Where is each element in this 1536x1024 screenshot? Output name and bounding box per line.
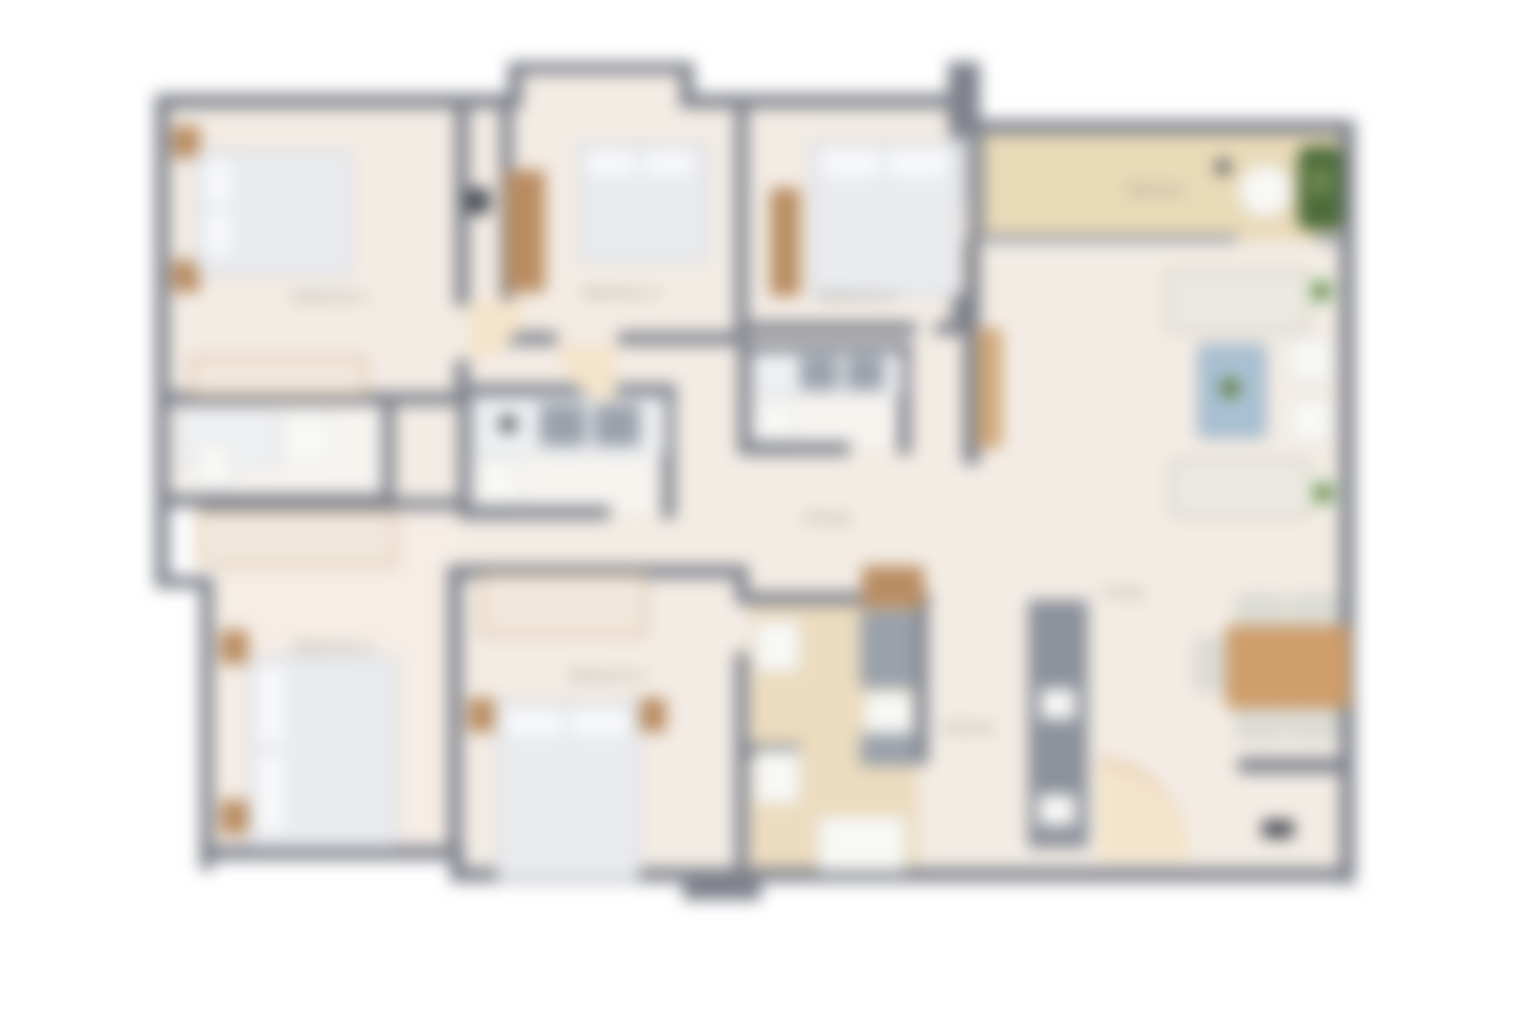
floor-plan-blur-layer: Bedroom 1 Bedroom 2 Bedroom 3 Bedroom 5 …: [0, 0, 1536, 1024]
floor-bedroom2-bump: [514, 72, 686, 112]
bedroom3-wardrobe-left: [770, 188, 800, 296]
wall-balcony-left: [970, 120, 983, 242]
kitchen-counter-lower: [860, 734, 916, 766]
bedroom4-pillow: [569, 707, 631, 739]
bedroom4-nightstand-left: [468, 698, 494, 732]
utility-dryer: [1038, 794, 1076, 826]
bedroom2-pillow: [584, 148, 638, 178]
floor-living-zone: [970, 240, 1344, 870]
living-sofa-bottom: [1170, 458, 1310, 518]
dining-chair: [1236, 704, 1284, 740]
central-bathroom-toilet: [478, 458, 518, 506]
wall-bedroom5-top: [200, 498, 464, 510]
balcony-small-object: [1216, 160, 1230, 174]
wall-cbath-bottom: [458, 506, 610, 519]
bedroom5-pillow: [254, 664, 288, 746]
wall-kitchen-right: [915, 592, 928, 764]
bedroom5-nightstand-bottom: [220, 800, 248, 834]
central-bathroom-sink: [594, 404, 640, 446]
bathroom3-sink: [846, 356, 884, 390]
entry-door-mark: [1262, 820, 1294, 838]
living-plant-leaf: [1314, 484, 1332, 502]
wall-bedroom5-bottom: [200, 846, 464, 860]
room-label-bedroom5: Bedroom 5: [295, 639, 372, 656]
room-label-bedroom2: Bedroom 2: [584, 285, 661, 302]
dining-chair: [1290, 594, 1338, 630]
room-label-living: Living: [1101, 584, 1143, 601]
wall-bath3-bottom: [738, 442, 850, 455]
kitchen-stove: [864, 692, 914, 734]
wall-bath1-right: [382, 404, 395, 504]
shower-tray: [818, 816, 906, 872]
dining-table: [1226, 626, 1350, 708]
wall-b4-left: [448, 565, 462, 857]
balcony-round-table: [1238, 164, 1292, 218]
wall-bottom-stub: [683, 880, 761, 900]
utility-washer: [1040, 688, 1076, 720]
coffee-table-centerpiece: [1220, 378, 1240, 398]
bedroom4-wardrobe: [480, 574, 646, 636]
room-label-bedroom3: Bedroom 3: [820, 288, 897, 305]
wall-b4-right-lower: [735, 652, 748, 882]
living-end-table: [1290, 398, 1332, 442]
room-label-dining: Dining: [805, 510, 850, 527]
bedroom2-pillow: [642, 148, 696, 178]
wall-below-b2-left: [513, 332, 557, 345]
bedroom3-pillow: [818, 146, 882, 180]
wall-left-upper: [155, 94, 169, 588]
room-label-bedroom1: Bedroom 1: [294, 289, 371, 306]
wall-cbath-left: [458, 384, 471, 519]
wall-top-mid: [680, 94, 974, 108]
bedroom2-wardrobe: [505, 170, 545, 292]
bathroom3-toilet: [758, 398, 794, 442]
bathroom1-washbasin: [282, 416, 334, 464]
dining-chair: [1236, 594, 1284, 630]
central-bathroom-faucet: [500, 416, 516, 432]
bathroom3-sink: [800, 356, 838, 390]
wall-left-lower: [200, 576, 213, 870]
living-plant-leaf: [1312, 282, 1330, 300]
wall-below-balcony-right: [1316, 234, 1342, 243]
bedroom4-nightstand-right: [640, 698, 666, 732]
wall-foyer: [1238, 758, 1355, 773]
bedroom5-nightstand-top: [220, 630, 248, 664]
bedroom3-pillow: [886, 146, 950, 180]
bathroom4-fixture: [754, 750, 800, 804]
room-label-bedroom4: Bedroom 4: [570, 668, 647, 685]
kitchen-sink: [754, 620, 800, 672]
wall-cbath-top: [458, 384, 676, 396]
balcony-plant-leaf: [1308, 166, 1332, 196]
dining-chair: [1290, 704, 1338, 740]
hall-door-panel: [976, 328, 1002, 448]
living-sofa-top: [1166, 270, 1308, 332]
living-end-table: [1290, 338, 1332, 382]
bedroom1-dresser: [190, 356, 366, 396]
bedroom5-wardrobe: [196, 510, 396, 566]
wall-b2-b3-divider: [735, 94, 748, 344]
central-bathroom-sink: [540, 404, 586, 446]
bedroom2-door-object: [466, 188, 490, 214]
bedroom1-pillow: [202, 210, 234, 258]
wall-balcony-top: [965, 120, 1355, 134]
dining-chair: [1194, 638, 1228, 692]
bedroom5-pillow: [254, 752, 288, 834]
dining-console: [862, 566, 924, 608]
bedroom4-pillow: [503, 707, 565, 739]
wall-below-b2-right: [618, 332, 748, 345]
bedroom1-pillow: [202, 158, 234, 206]
floor-plan-screenshot: Bedroom 1 Bedroom 2 Bedroom 3 Bedroom 5 …: [0, 0, 1536, 1024]
room-label-kitchen: Kitchen: [943, 720, 996, 737]
wall-below-b3: [748, 322, 916, 335]
wall-below-balcony: [985, 234, 1237, 243]
kitchen-counter-upper: [860, 610, 916, 688]
wall-bath3-left: [738, 342, 751, 455]
bathroom1-toilet: [196, 442, 232, 488]
wall-bump-top: [508, 62, 694, 74]
room-label-balcony: Balcony: [1128, 182, 1184, 199]
